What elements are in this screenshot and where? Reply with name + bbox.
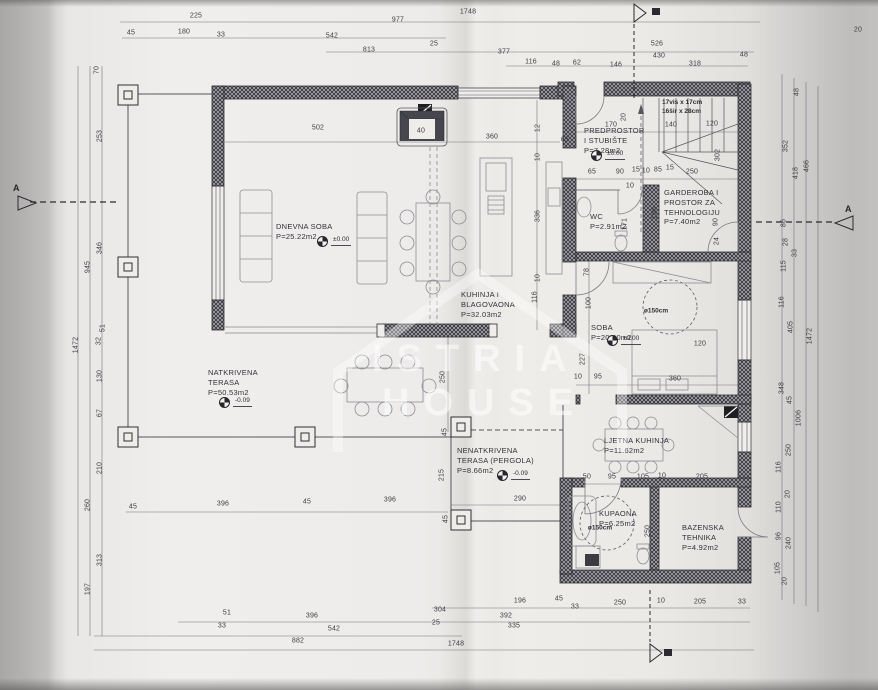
dimension-label: 12 — [535, 124, 542, 132]
level-marker: ±0.00 — [317, 236, 351, 247]
dimension-label: 65 — [561, 137, 569, 144]
dimension-label: 346 — [97, 242, 104, 254]
dimension-label: 526 — [651, 41, 663, 48]
dimension-label: 70 — [94, 66, 101, 74]
dimension-label: 196 — [514, 598, 526, 605]
dimension-label: 33 — [571, 604, 579, 611]
dimension-label: 430 — [653, 53, 665, 60]
dimension-label: 360 — [486, 134, 498, 141]
dimension-label: 313 — [97, 554, 104, 566]
dimension-label: 240 — [786, 537, 793, 549]
dimension-label: 882 — [292, 638, 304, 645]
dimension-label: 33 — [217, 32, 225, 39]
dimension-label: 45 — [303, 499, 311, 506]
dimension-label: 120 — [706, 121, 718, 128]
dimension-label: 67 — [97, 409, 104, 417]
dimension-label: 51 — [223, 610, 231, 617]
floor-plan-photo: 2259771748451803354225813377526430481164… — [0, 0, 878, 690]
dimension-label: 25 — [432, 620, 440, 627]
dimension-label: 116 — [776, 461, 783, 473]
stair-dimensions-note: 17vis x 17cm16šir x 28cm — [662, 99, 702, 117]
dimension-label: 140 — [665, 122, 677, 129]
dimension-label: 466 — [804, 160, 811, 172]
dimension-label: 110 — [776, 501, 783, 513]
dimension-label: 95 — [594, 374, 602, 381]
dimension-label: 95 — [608, 474, 616, 481]
dimension-label: 25 — [430, 41, 438, 48]
dimension-label: 348 — [779, 382, 786, 394]
dimension-label: 20 — [785, 490, 792, 498]
dimension-label: 20 — [782, 577, 789, 585]
room-label: WCP=2.91m2 — [590, 212, 626, 232]
dimension-label: 40 — [417, 128, 425, 135]
section-marker-a-right: A — [845, 204, 852, 214]
dimension-label: 96 — [776, 532, 783, 540]
plan-labels-layer: 2259771748451803354225813377526430481164… — [0, 0, 878, 690]
dimension-label: 197 — [85, 583, 92, 595]
dimension-label: 977 — [392, 17, 404, 24]
dimension-label: 318 — [689, 61, 701, 68]
dimension-label: 542 — [326, 33, 338, 40]
dimension-label: 1006 — [796, 410, 803, 426]
dimension-label: 10 — [535, 153, 542, 161]
dimension-label: 336 — [535, 210, 542, 222]
dimension-label: 10 — [574, 374, 582, 381]
dimension-label: 250 — [440, 371, 447, 383]
dimension-label: 116 — [779, 296, 786, 308]
dimension-label: 180 — [178, 29, 190, 36]
dimension-label: 100 — [586, 297, 593, 309]
dimension-label: 85 — [654, 167, 662, 174]
dimension-label: 1472 — [807, 328, 814, 344]
level-symbol-icon — [317, 236, 328, 247]
dimension-label: 45 — [129, 504, 137, 511]
level-symbol-icon — [607, 335, 618, 346]
dimension-label: 78 — [584, 268, 591, 276]
dimension-label: 105 — [775, 562, 782, 574]
level-marker: -0.09 — [497, 470, 530, 481]
dimension-label: 45 — [127, 30, 135, 37]
dimension-label: 86 — [781, 219, 788, 227]
dimension-label: 20 — [854, 27, 862, 34]
level-marker: ±0.00 — [591, 150, 625, 161]
dimension-label: 50 — [583, 474, 591, 481]
dimension-label: 304 — [434, 607, 446, 614]
room-label: NATKRIVENATERASAP=50.53m2 — [208, 368, 258, 397]
dimension-label: 302 — [715, 149, 722, 161]
dimension-label: 28 — [783, 238, 790, 246]
dimension-label: 45 — [787, 396, 794, 404]
dimension-label: 32 — [96, 337, 103, 345]
dimension-label: 542 — [328, 626, 340, 633]
section-marker-a-left: A — [13, 183, 20, 193]
dimension-label: 196 — [652, 207, 659, 219]
dimension-label: 10 — [658, 473, 666, 480]
level-symbol-icon — [219, 397, 230, 408]
dimension-label: 253 — [97, 130, 104, 142]
dimension-label: 130 — [97, 370, 104, 382]
dimension-label: 45 — [555, 596, 563, 603]
dimension-label: 377 — [498, 49, 510, 56]
dimension-label: 105 — [637, 474, 649, 481]
dimension-label: 396 — [217, 501, 229, 508]
dimension-label: 51 — [100, 324, 107, 332]
dimension-label: 1748 — [448, 641, 464, 648]
room-label: GARDEROBA IPROSTOR ZATEHNOLOGIJUP=7.40m2 — [664, 188, 720, 227]
room-label: BAZENSKATEHNIKAP=4.92m2 — [682, 523, 724, 552]
dimension-label: 45 — [443, 515, 450, 523]
dimension-label: 290 — [514, 496, 526, 503]
dimension-label: 45 — [442, 428, 449, 436]
level-symbol-icon — [497, 470, 508, 481]
dimension-label: 1748 — [460, 9, 476, 16]
dimension-label: 62 — [573, 60, 581, 67]
dimension-label: 205 — [694, 599, 706, 606]
dimension-label: 396 — [384, 497, 396, 504]
dimension-label: 250 — [645, 525, 652, 537]
dimension-label: 146 — [610, 62, 622, 69]
dimension-label: 90 — [616, 169, 624, 176]
dimension-label: 10 — [535, 274, 542, 282]
dimension-label: 502 — [312, 125, 324, 132]
level-symbol-icon — [591, 150, 602, 161]
dimension-label: 335 — [508, 623, 520, 630]
dimension-label: 210 — [97, 462, 104, 474]
dimension-label: 945 — [85, 261, 92, 273]
dimension-label: 405 — [788, 321, 795, 333]
dimension-label: 260 — [85, 499, 92, 511]
dimension-label: 65 — [588, 169, 596, 176]
dimension-label: 418 — [793, 167, 800, 179]
dimension-label: 225 — [190, 13, 202, 20]
dimension-label: 396 — [306, 613, 318, 620]
dimension-label: 24 — [714, 237, 721, 245]
level-marker: ±0.00 — [607, 335, 641, 346]
dimension-label: 33 — [738, 599, 746, 606]
dimension-label: 48 — [552, 61, 560, 68]
dimension-label: 250 — [614, 600, 626, 607]
dimension-label: 20 — [621, 113, 628, 121]
dimension-label: 250 — [686, 169, 698, 176]
room-label: LJETNA KUHINJAP=11.62m2 — [604, 436, 669, 456]
dimension-label: 120 — [694, 341, 706, 348]
dimension-label: 205 — [696, 474, 708, 481]
dimension-label: 1472 — [73, 337, 80, 353]
dimension-label: 115 — [781, 260, 788, 272]
dimension-label: 48 — [740, 52, 748, 59]
dimension-label: 813 — [363, 47, 375, 54]
dimension-label: 15 — [632, 167, 640, 174]
dimension-label: 48 — [794, 88, 801, 96]
dimension-label: 10 — [626, 183, 634, 190]
dimension-label: 227 — [580, 353, 587, 365]
dimension-label: 33 — [218, 623, 226, 630]
dimension-label: 352 — [783, 140, 790, 152]
diameter-label: ø150cm — [588, 525, 612, 532]
diameter-label: ø150cm — [644, 308, 668, 315]
dimension-label: 116 — [532, 291, 539, 303]
dimension-label: 33 — [792, 249, 799, 257]
dimension-label: 215 — [439, 469, 446, 481]
dimension-label: 10 — [642, 168, 650, 175]
dimension-label: 15 — [666, 165, 674, 172]
dimension-label: 392 — [500, 613, 512, 620]
dimension-label: 360 — [669, 376, 681, 383]
dimension-label: 10 — [657, 598, 665, 605]
dimension-label: 250 — [786, 444, 793, 456]
level-marker: -0.09 — [219, 397, 252, 408]
dimension-label: 116 — [525, 59, 537, 66]
room-label: KUHINJA IBLAGOVAONAP=32.03m2 — [461, 290, 515, 319]
